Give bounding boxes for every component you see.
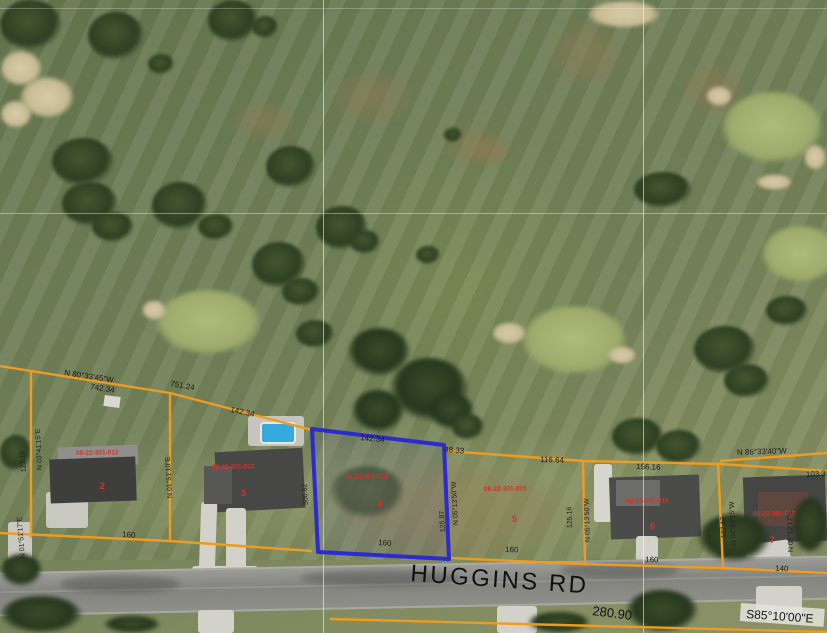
parcel-id-label: 08-22-301-017 <box>753 510 796 518</box>
lot-number-label: 3 <box>241 488 246 498</box>
bearing-label: N 05°13'50"W <box>450 481 460 525</box>
distance-label: 103.31 <box>806 469 827 479</box>
distance-label: 116.64 <box>540 455 565 465</box>
frontage-label: 140 <box>775 564 789 573</box>
distance-label: 123.16 <box>19 450 28 472</box>
bearing-label: N 01°51'10"E <box>164 456 174 498</box>
distance-label: 127.17 <box>720 516 728 538</box>
lot-number-label: 5 <box>512 514 517 524</box>
frontage-label: 160 <box>505 545 519 554</box>
lot-number-label: 6 <box>650 521 655 531</box>
bearing-label: N 03°41'15"E <box>34 428 44 470</box>
lot-number-label: 7 <box>770 535 775 545</box>
distance-label: 142.34 <box>230 405 256 419</box>
bearing-label: N 05°13'50"W <box>582 498 592 542</box>
parcel-id-label: 08-22-301-013 <box>212 463 255 471</box>
frontage-label: 160 <box>378 538 392 548</box>
parcel-id-label: 08-22-301-014 <box>345 473 388 481</box>
parcel-boundary-south-west <box>0 533 312 551</box>
distance-label: 125.87 <box>439 510 447 532</box>
distance-label: 156.16 <box>636 462 661 472</box>
parcel-overlay: N 80°33'45"W 742.34 751.24 142.34 142.34… <box>0 0 827 633</box>
distance-label: 280.90 <box>592 603 633 623</box>
parcel-id-label: 08-22-301-015 <box>484 485 527 493</box>
frontage-label: 160 <box>645 555 659 564</box>
parcel-boundary-north-west <box>0 366 312 430</box>
road-name-label: HUGGINS RD <box>410 560 590 599</box>
bearing-label: N 01°51'17"E <box>15 516 27 559</box>
parcel-id-label: 08-22-301-016 <box>626 497 669 505</box>
lot-line <box>718 463 723 568</box>
parcel-id-label: 08-22-301-012 <box>76 449 119 457</box>
bearing-label: N 80°33'45"W <box>64 368 115 385</box>
bearing-label: N 86°33'40"W <box>737 446 788 457</box>
bearing-label: N 04°51'15"W <box>728 501 738 545</box>
lot-number-label: 4 <box>377 499 382 509</box>
frontage-label: 160 <box>122 530 136 540</box>
gis-map-viewport[interactable]: N 80°33'45"W 742.34 751.24 142.34 142.34… <box>0 0 827 633</box>
distance-label: 48.33 <box>444 445 465 455</box>
distance-label: 300.62 <box>302 483 310 505</box>
lot-number-label: 2 <box>100 481 105 491</box>
distance-label: 125.16 <box>566 506 574 528</box>
distance-label: 751.24 <box>170 379 196 392</box>
